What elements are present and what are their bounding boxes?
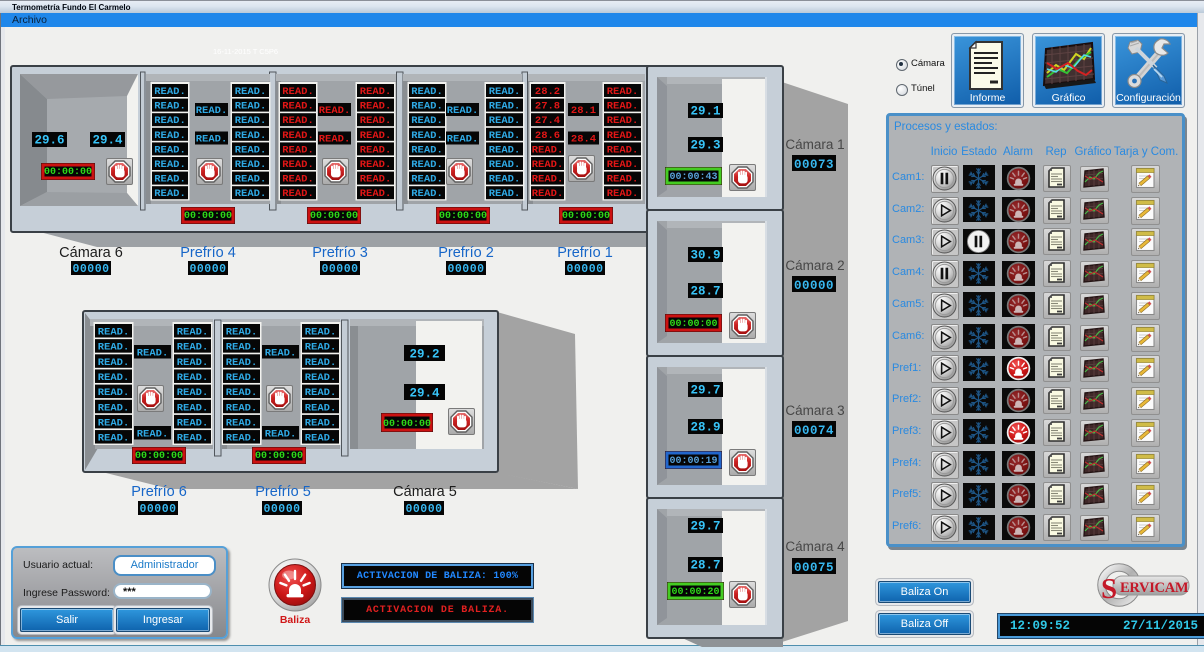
svg-text:Cámara 2: Cámara 2: [785, 258, 844, 273]
svg-text:READ.: READ.: [154, 101, 186, 113]
svg-text:READ.: READ.: [489, 101, 521, 113]
svg-text:29.6: 29.6: [34, 134, 64, 148]
svg-text:READ.: READ.: [305, 387, 337, 399]
svg-text:00000: 00000: [263, 503, 300, 516]
svg-text:READ.: READ.: [235, 86, 267, 98]
svg-text:00:00:00: 00:00:00: [439, 211, 487, 222]
svg-text:READ.: READ.: [282, 115, 314, 127]
svg-text:00:00:00: 00:00:00: [310, 211, 358, 222]
svg-text:28.7: 28.7: [690, 559, 720, 573]
svg-text:ERVICAM: ERVICAM: [1120, 580, 1189, 596]
svg-text:00075: 00075: [794, 561, 834, 575]
svg-text:00000: 00000: [447, 263, 484, 276]
svg-text:Cámara 3: Cámara 3: [785, 403, 844, 418]
svg-text:READ.: READ.: [196, 134, 228, 146]
svg-text:29.3: 29.3: [690, 139, 720, 153]
svg-text:READ.: READ.: [226, 433, 258, 445]
svg-text:29.7: 29.7: [690, 384, 720, 398]
svg-text:00:00:00: 00:00:00: [44, 167, 92, 178]
svg-text:READ.: READ.: [137, 348, 169, 360]
svg-text:00:00:20: 00:00:20: [671, 587, 719, 598]
svg-text:READ.: READ.: [265, 429, 297, 441]
svg-text:READ.: READ.: [226, 417, 258, 429]
svg-text:READ.: READ.: [282, 86, 314, 98]
svg-text:READ.: READ.: [98, 417, 130, 429]
svg-text:29.4: 29.4: [92, 134, 123, 148]
svg-text:28.6: 28.6: [535, 130, 560, 142]
svg-text:READ.: READ.: [235, 115, 267, 127]
svg-text:READ.: READ.: [98, 342, 130, 354]
svg-text:READ.: READ.: [447, 134, 479, 146]
svg-text:27.4: 27.4: [535, 115, 560, 127]
svg-text:READ.: READ.: [196, 105, 228, 117]
svg-text:READ.: READ.: [305, 327, 337, 339]
svg-text:READ.: READ.: [98, 387, 130, 399]
svg-text:READ.: READ.: [226, 357, 258, 369]
svg-text:00073: 00073: [794, 158, 834, 172]
svg-text:READ.: READ.: [98, 327, 130, 339]
svg-text:READ.: READ.: [411, 174, 443, 186]
svg-text:READ.: READ.: [177, 433, 209, 445]
svg-text:28.4: 28.4: [571, 134, 596, 146]
svg-text:READ.: READ.: [154, 86, 186, 98]
svg-text:Cámara 1: Cámara 1: [785, 137, 844, 152]
svg-text:READ.: READ.: [607, 159, 639, 171]
svg-text:READ.: READ.: [98, 372, 130, 384]
svg-text:00000: 00000: [405, 503, 442, 516]
svg-text:READ.: READ.: [177, 387, 209, 399]
svg-text:READ.: READ.: [226, 342, 258, 354]
svg-text:READ.: READ.: [154, 174, 186, 186]
svg-text:READ.: READ.: [360, 115, 392, 127]
svg-text:READ.: READ.: [305, 357, 337, 369]
svg-text:READ.: READ.: [607, 86, 639, 98]
svg-text:READ.: READ.: [305, 433, 337, 445]
svg-text:READ.: READ.: [226, 402, 258, 414]
svg-text:READ.: READ.: [154, 159, 186, 171]
svg-text:READ.: READ.: [226, 372, 258, 384]
svg-text:READ.: READ.: [177, 372, 209, 384]
svg-text:29.4: 29.4: [409, 387, 440, 401]
svg-text:READ.: READ.: [282, 144, 314, 156]
svg-text:READ.: READ.: [489, 115, 521, 127]
svg-text:00:00:43: 00:00:43: [669, 172, 717, 183]
svg-text:READ.: READ.: [532, 159, 564, 171]
svg-text:READ.: READ.: [532, 188, 564, 200]
svg-text:READ.: READ.: [177, 417, 209, 429]
svg-text:READ.: READ.: [411, 130, 443, 142]
svg-text:Prefrío 1: Prefrío 1: [557, 245, 613, 261]
svg-text:READ.: READ.: [137, 429, 169, 441]
svg-text:READ.: READ.: [265, 348, 297, 360]
svg-text:READ.: READ.: [489, 86, 521, 98]
svg-text:00000: 00000: [72, 263, 109, 276]
svg-text:READ.: READ.: [154, 188, 186, 200]
svg-text:READ.: READ.: [411, 159, 443, 171]
svg-text:READ.: READ.: [235, 174, 267, 186]
svg-text:READ.: READ.: [607, 144, 639, 156]
svg-text:READ.: READ.: [607, 188, 639, 200]
svg-text:READ.: READ.: [235, 188, 267, 200]
svg-text:READ.: READ.: [305, 372, 337, 384]
svg-text:28.7: 28.7: [690, 285, 720, 299]
svg-text:29.7: 29.7: [690, 520, 720, 534]
svg-text:Cámara 4: Cámara 4: [785, 539, 845, 554]
svg-text:S: S: [1101, 573, 1117, 605]
svg-text:00000: 00000: [794, 279, 834, 293]
svg-text:00:00:00: 00:00:00: [669, 319, 717, 330]
svg-text:READ.: READ.: [98, 402, 130, 414]
svg-text:00000: 00000: [566, 263, 603, 276]
svg-text:READ.: READ.: [282, 188, 314, 200]
svg-text:28.2: 28.2: [535, 86, 560, 98]
svg-text:READ.: READ.: [489, 159, 521, 171]
svg-text:READ.: READ.: [607, 101, 639, 113]
svg-text:READ.: READ.: [360, 130, 392, 142]
svg-text:READ.: READ.: [360, 159, 392, 171]
svg-text:00:00:00: 00:00:00: [383, 419, 431, 430]
svg-text:30.9: 30.9: [690, 249, 720, 263]
svg-text:READ.: READ.: [235, 101, 267, 113]
svg-text:READ.: READ.: [282, 159, 314, 171]
svg-text:READ.: READ.: [447, 105, 479, 117]
svg-text:READ.: READ.: [282, 130, 314, 142]
svg-text:READ.: READ.: [360, 174, 392, 186]
svg-text:READ.: READ.: [98, 357, 130, 369]
svg-text:READ.: READ.: [607, 174, 639, 186]
svg-text:READ.: READ.: [489, 130, 521, 142]
svg-text:READ.: READ.: [282, 101, 314, 113]
svg-text:READ.: READ.: [360, 101, 392, 113]
svg-text:Prefrío 4: Prefrío 4: [180, 245, 236, 261]
svg-text:00:00:00: 00:00:00: [562, 211, 610, 222]
svg-text:28.9: 28.9: [690, 421, 720, 435]
svg-text:READ.: READ.: [489, 188, 521, 200]
svg-text:READ.: READ.: [305, 342, 337, 354]
svg-text:READ.: READ.: [177, 357, 209, 369]
svg-text:27.8: 27.8: [535, 101, 560, 113]
svg-text:READ.: READ.: [532, 174, 564, 186]
svg-text:00074: 00074: [794, 424, 834, 438]
svg-text:Prefrío 5: Prefrío 5: [255, 484, 311, 500]
svg-text:READ.: READ.: [235, 144, 267, 156]
svg-text:READ.: READ.: [154, 130, 186, 142]
svg-text:READ.: READ.: [360, 86, 392, 98]
svg-text:READ.: READ.: [411, 188, 443, 200]
svg-text:READ.: READ.: [489, 174, 521, 186]
svg-text:READ.: READ.: [226, 327, 258, 339]
svg-text:READ.: READ.: [235, 159, 267, 171]
svg-text:Cámara 6: Cámara 6: [59, 245, 123, 261]
svg-text:00:00:00: 00:00:00: [255, 451, 303, 462]
svg-text:READ.: READ.: [360, 188, 392, 200]
svg-text:READ.: READ.: [607, 115, 639, 127]
svg-text:READ.: READ.: [319, 134, 351, 146]
svg-text:READ.: READ.: [226, 387, 258, 399]
svg-text:READ.: READ.: [177, 402, 209, 414]
svg-text:Prefrío 6: Prefrío 6: [131, 484, 187, 500]
svg-text:00:00:00: 00:00:00: [184, 211, 232, 222]
svg-text:READ.: READ.: [235, 130, 267, 142]
svg-text:28.1: 28.1: [571, 105, 596, 117]
svg-text:READ.: READ.: [411, 144, 443, 156]
svg-text:READ.: READ.: [154, 144, 186, 156]
svg-text:READ.: READ.: [532, 144, 564, 156]
svg-text:READ.: READ.: [411, 115, 443, 127]
svg-text:00:00:00: 00:00:00: [135, 451, 183, 462]
svg-text:READ.: READ.: [154, 115, 186, 127]
svg-text:READ.: READ.: [305, 402, 337, 414]
svg-text:Cámara 5: Cámara 5: [393, 484, 457, 500]
svg-text:00000: 00000: [321, 263, 358, 276]
svg-text:00000: 00000: [139, 503, 176, 516]
svg-text:29.2: 29.2: [409, 348, 439, 362]
svg-text:READ.: READ.: [489, 144, 521, 156]
svg-text:READ.: READ.: [319, 105, 351, 117]
svg-text:READ.: READ.: [305, 417, 337, 429]
svg-text:READ.: READ.: [177, 327, 209, 339]
svg-text:Prefrío 3: Prefrío 3: [312, 245, 368, 261]
svg-text:READ.: READ.: [282, 174, 314, 186]
svg-text:READ.: READ.: [607, 130, 639, 142]
svg-text:Prefrío 2: Prefrío 2: [438, 245, 494, 261]
svg-text:READ.: READ.: [411, 86, 443, 98]
svg-text:Baliza: Baliza: [280, 614, 311, 626]
svg-text:00000: 00000: [189, 263, 226, 276]
svg-text:READ.: READ.: [411, 101, 443, 113]
svg-text:29.1: 29.1: [690, 105, 720, 119]
svg-text:READ.: READ.: [360, 144, 392, 156]
svg-text:00:00:19: 00:00:19: [669, 456, 717, 467]
svg-text:READ.: READ.: [98, 433, 130, 445]
svg-text:READ.: READ.: [177, 342, 209, 354]
